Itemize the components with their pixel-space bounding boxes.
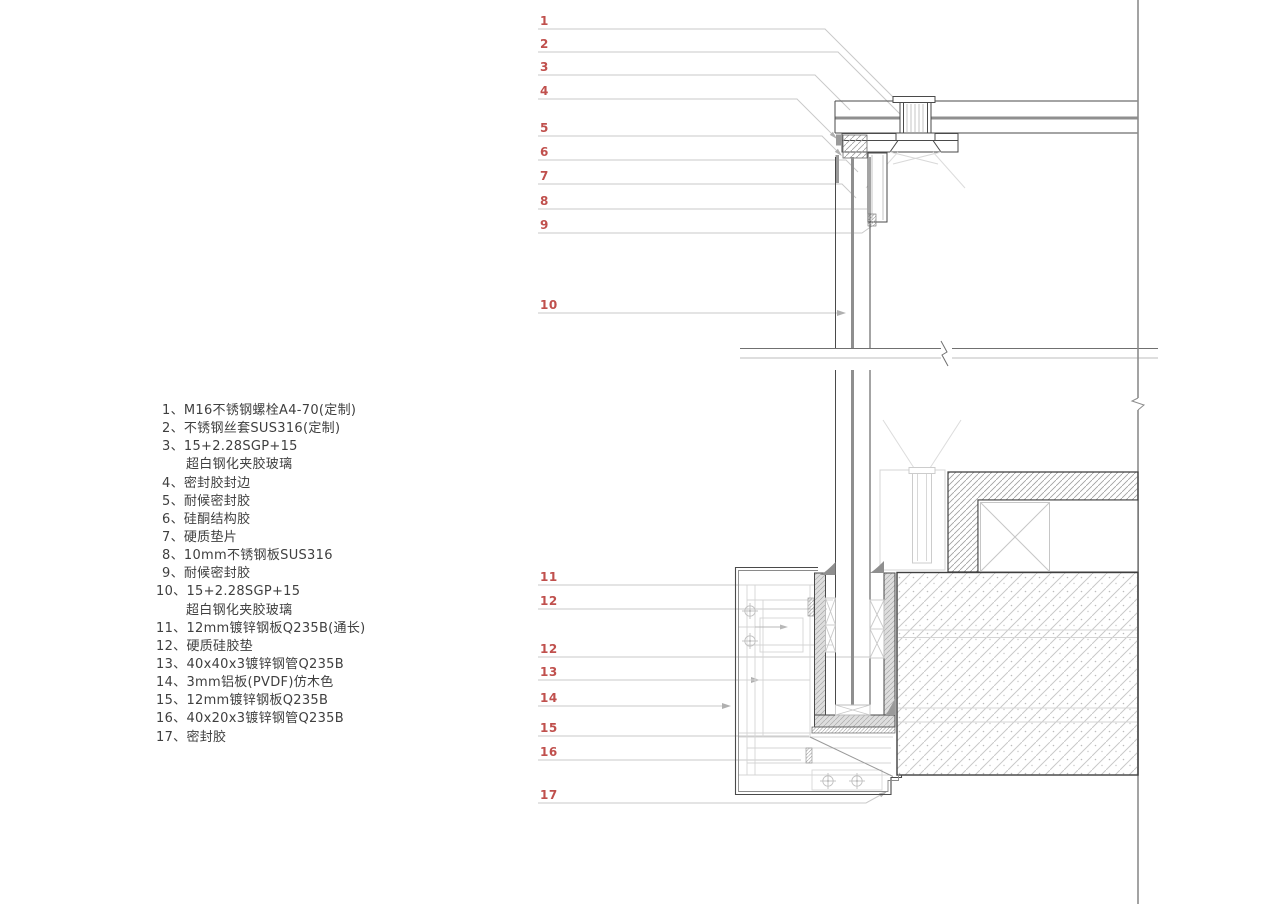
legend-item-16: 16、40x20x3镀锌钢管Q235B bbox=[156, 710, 366, 728]
legend-item-12: 12、硬质硅胶垫 bbox=[156, 638, 366, 656]
shoe-under-strip bbox=[812, 727, 895, 733]
glass-fin bbox=[836, 157, 871, 705]
bolt-cap-plate bbox=[893, 97, 935, 103]
callout-number-6: 6 bbox=[540, 145, 549, 159]
legend-item-1: 1、M16不锈钢螺栓A4-70(定制) bbox=[156, 402, 366, 420]
callout-number-10: 10 bbox=[540, 298, 558, 312]
top-connection-detail bbox=[835, 97, 1138, 227]
legend-item-6: 6、硅酮结构胶 bbox=[156, 511, 366, 529]
fin-edge-seal bbox=[836, 155, 840, 183]
bolt-flange bbox=[896, 133, 935, 141]
embedded-steel-frame bbox=[880, 420, 1138, 572]
sealant-wedge-right bbox=[870, 561, 884, 573]
horizontal-break-line bbox=[740, 341, 1158, 366]
legend-item-3b: 超白钢化夹胶玻璃 bbox=[156, 456, 366, 474]
legend-item-3: 3、15+2.28SGP+15 bbox=[156, 438, 366, 456]
legend-item-10b: 超白钢化夹胶玻璃 bbox=[156, 602, 366, 620]
legend-item-5: 5、耐候密封胶 bbox=[156, 493, 366, 511]
legend-item-13: 13、40x40x3镀锌钢管Q235B bbox=[156, 656, 366, 674]
legend-item-2: 2、不锈钢丝套SUS316(定制) bbox=[156, 420, 366, 438]
panel-fold-line bbox=[810, 737, 893, 777]
leader-line-6 bbox=[538, 160, 858, 172]
bolt-cone bbox=[890, 141, 941, 153]
legend-item-7: 7、硬质垫片 bbox=[156, 529, 366, 547]
legend-item-14: 14、3mm铝板(PVDF)仿木色 bbox=[156, 674, 366, 692]
callout-number-2: 2 bbox=[540, 37, 549, 51]
callout-number-1: 1 bbox=[540, 14, 549, 28]
legend-item-11: 11、12mm镀锌钢板Q235B(通长) bbox=[156, 620, 366, 638]
callout-number-15: 15 bbox=[540, 721, 558, 735]
callout-number-7: 7 bbox=[540, 169, 549, 183]
wall-break-zigzag bbox=[1132, 398, 1144, 410]
legend-item-9: 9、耐候密封胶 bbox=[156, 565, 366, 583]
material-legend: 1、M16不锈钢螺栓A4-70(定制) 2、不锈钢丝套SUS316(定制) 3、… bbox=[156, 402, 366, 747]
callout-number-13: 13 bbox=[540, 665, 558, 679]
callout-number-12b: 12 bbox=[540, 642, 558, 656]
glass-edge-seal bbox=[836, 135, 842, 146]
leader-arrow-10 bbox=[837, 310, 846, 316]
callout-number-14: 14 bbox=[540, 691, 558, 705]
shoe-right-plate bbox=[884, 573, 895, 715]
legend-item-4: 4、密封胶封边 bbox=[156, 475, 366, 493]
callout-number-17: 17 bbox=[540, 788, 558, 802]
leader-line-9 bbox=[538, 226, 872, 233]
callout-number-16: 16 bbox=[540, 745, 558, 759]
leader-line-1 bbox=[538, 29, 897, 101]
leader-line-17 bbox=[538, 792, 886, 803]
callout-number-11: 11 bbox=[540, 570, 558, 584]
gasket-hatch-block bbox=[843, 135, 867, 158]
callout-number-3: 3 bbox=[540, 60, 549, 74]
legend-item-17: 17、密封胶 bbox=[156, 729, 366, 747]
leader-arrow-14 bbox=[722, 703, 731, 709]
shoe-bottom-plate bbox=[815, 715, 896, 727]
concrete-wall bbox=[897, 573, 1138, 776]
callout-number-4: 4 bbox=[540, 84, 549, 98]
bolt-shaft bbox=[900, 103, 931, 134]
callout-number-5: 5 bbox=[540, 121, 549, 135]
legend-item-10: 10、15+2.28SGP+15 bbox=[156, 583, 366, 601]
canopy-glass-interlayer bbox=[835, 117, 1138, 120]
leader-line-4 bbox=[538, 99, 836, 138]
callout-number-12a: 12 bbox=[540, 594, 558, 608]
stainless-fin-plate bbox=[868, 153, 887, 222]
legend-item-8: 8、10mm不锈钢板SUS316 bbox=[156, 547, 366, 565]
upper-leader-lines bbox=[538, 29, 903, 316]
callout-number-9: 9 bbox=[540, 218, 549, 232]
detail-drawing-sheet: 1、M16不锈钢螺栓A4-70(定制) 2、不锈钢丝套SUS316(定制) 3、… bbox=[0, 0, 1280, 904]
leader-line-7 bbox=[538, 184, 856, 198]
break-zigzag bbox=[941, 341, 948, 366]
bolt-symbols bbox=[742, 603, 865, 789]
legend-item-15: 15、12mm镀锌钢板Q235B bbox=[156, 692, 366, 710]
callout-number-8: 8 bbox=[540, 194, 549, 208]
leader-line-2 bbox=[538, 52, 903, 117]
shoe-left-plate bbox=[815, 573, 826, 715]
leader-line-5 bbox=[538, 136, 841, 155]
